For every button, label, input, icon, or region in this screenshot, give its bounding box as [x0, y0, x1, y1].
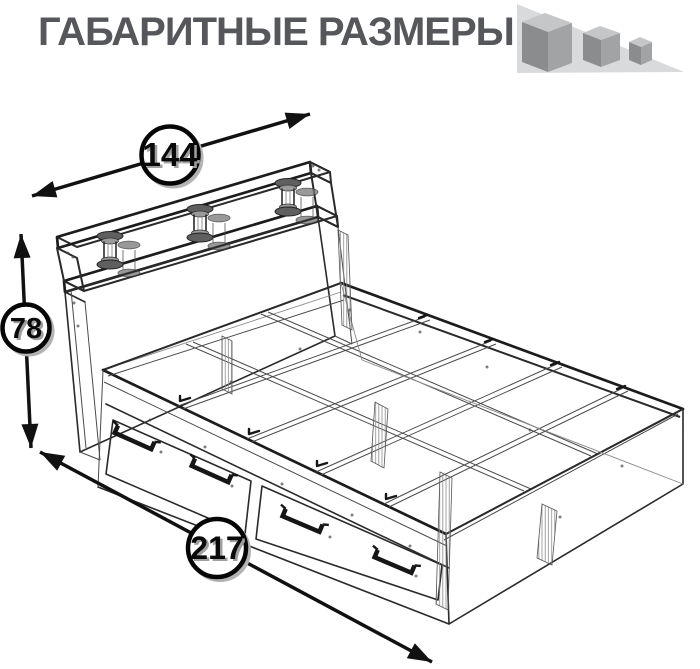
bed-dimensions-drawing: 144 144 78 78 217 217 [0, 0, 700, 669]
drawer-handle-icon [186, 454, 238, 484]
arrowhead-icon [32, 181, 57, 197]
headboard-glass-columns [97, 179, 301, 270]
arrowhead-icon [407, 643, 432, 662]
arrowhead-icon [285, 113, 310, 129]
width-dimension-value: 144 [142, 136, 198, 173]
arrowhead-icon [21, 424, 38, 448]
screw-dots [67, 165, 624, 578]
dimensions-diagram-page: ГАБАРИТНЫЕ РАЗМЕРЫ [0, 0, 700, 669]
arrowhead-icon [14, 234, 31, 258]
glass-column-icon [97, 232, 123, 270]
dimension-height-arrow: 78 78 [3, 234, 53, 448]
length-dimension-value: 217 [190, 530, 243, 566]
drawer-handle-icon [277, 505, 329, 535]
cube-icon-small [629, 37, 652, 65]
bed-drawer-1 [106, 420, 251, 534]
cube-icon-large [522, 13, 572, 72]
bed-platform [98, 283, 683, 624]
bed-drawing [57, 162, 683, 624]
glass-column-icon [275, 179, 301, 217]
height-dimension-value: 78 [10, 313, 42, 345]
arrowhead-icon [40, 452, 65, 471]
glass-column-icon [187, 205, 213, 243]
cube-icon-medium [583, 26, 620, 67]
three-cubes-logo-icon [517, 4, 684, 73]
